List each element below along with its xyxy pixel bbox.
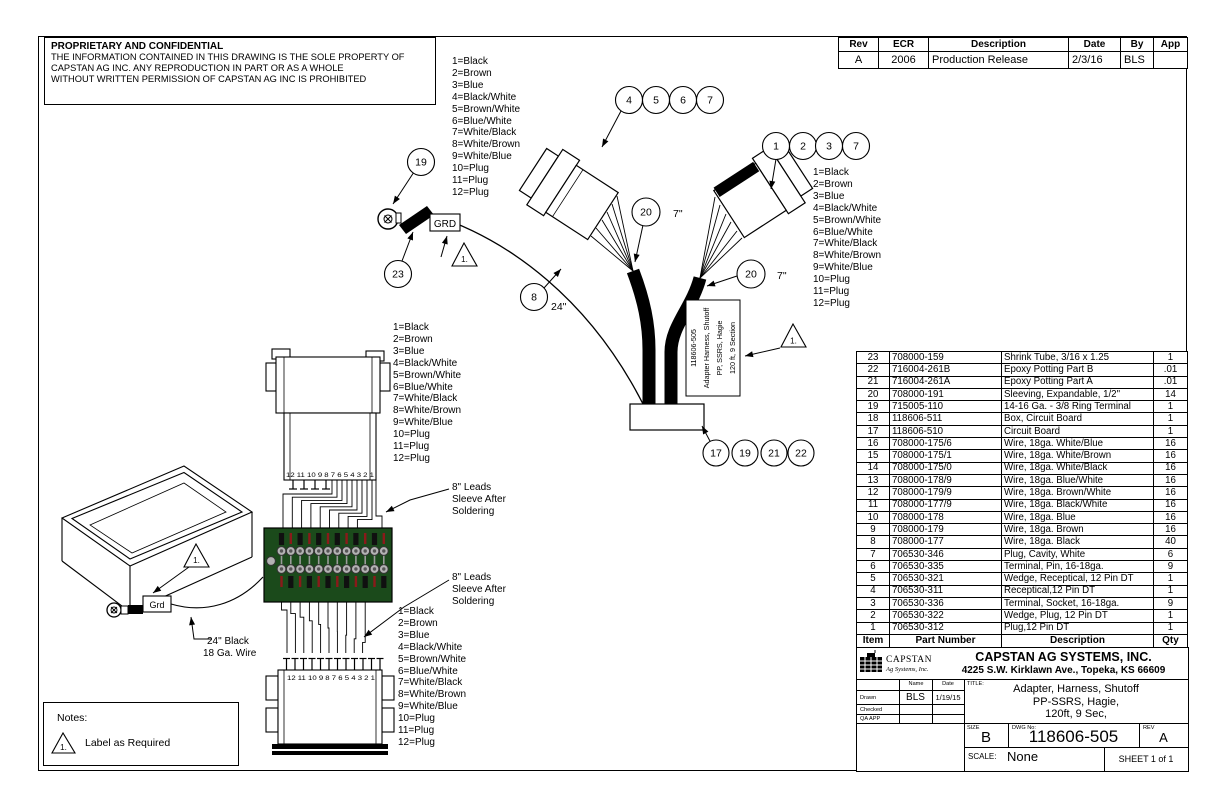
divider	[857, 679, 1188, 680]
parts-table-row: 22716004-261BEpoxy Potting Part B.01	[857, 364, 1188, 376]
revision-table: Rev ECR Description Date By App A 2006 P…	[838, 37, 1188, 69]
parts-col-desc: Wire, 18ga. Blue/White	[1002, 474, 1154, 486]
company-name: CAPSTAN AG SYSTEMS, INC.	[941, 650, 1186, 664]
harness-label-line: 118606-505	[689, 329, 698, 367]
parts-col-desc: Wire, 18ga. White/Black	[1002, 462, 1154, 474]
receptacle-pins	[289, 480, 330, 489]
balloon-22: 22	[795, 448, 807, 460]
pad-hole	[336, 567, 339, 570]
parts-col-item: 20	[857, 388, 890, 400]
wire-legend-line: 4=Black/White	[813, 203, 881, 215]
wire-legend-line: 4=Black/White	[398, 642, 466, 654]
svg-text:Soldering: Soldering	[452, 506, 494, 517]
wire-legend-line: 7=White/Black	[452, 127, 520, 139]
parts-col-desc: Plug, Cavity, White	[1002, 548, 1154, 560]
balloon-23: 23	[392, 269, 404, 281]
notes-box: Notes: 1. Label as Required	[43, 702, 239, 766]
wire-legend-line: 10=Plug	[398, 713, 466, 725]
app-value	[1154, 52, 1188, 69]
parts-col-part: 708000-177	[890, 536, 1002, 548]
parts-col-part: 708000-175/1	[890, 450, 1002, 462]
parts-col-item: 14	[857, 462, 890, 474]
pad-hole	[280, 549, 283, 552]
pin-numbers-upper: 12 11 10 9 8 7 6 5 4 3 2 1	[286, 472, 375, 479]
parts-col-item: 16	[857, 438, 890, 450]
parts-col-item: 7	[857, 548, 890, 560]
leader-arrowhead	[407, 232, 413, 241]
pad-hole	[326, 549, 329, 552]
parts-col-qty: 1	[1154, 585, 1188, 597]
lead-wire	[300, 602, 304, 653]
parts-col-desc: Shrink Tube, 3/16 x 1.25	[1002, 352, 1154, 364]
wire-legend-line: 1=Black	[398, 606, 466, 618]
parts-col-part: 118606-511	[890, 413, 1002, 425]
wire-legend-line: 6=Blue/White	[398, 666, 466, 678]
parts-col-qty: 1	[1154, 413, 1188, 425]
parts-col-desc: Receptical,12 Pin DT	[1002, 585, 1154, 597]
pad-hole	[373, 549, 376, 552]
scale-value: None	[1007, 749, 1038, 764]
wire-legend-line: 8=White/Brown	[393, 405, 461, 417]
wire-legend-line: 9=White/Blue	[398, 701, 466, 713]
wire-legend-line: 7=White/Black	[813, 238, 881, 250]
parts-col-desc: Epoxy Potting Part B	[1002, 364, 1154, 376]
wire-legend-line: 3=Blue	[452, 80, 520, 92]
board-component	[288, 576, 293, 588]
balloon-19: 19	[415, 157, 427, 169]
leader-arrowhead	[745, 351, 753, 357]
parts-table-row: 3706530-336Terminal, Socket, 16-18ga.9	[857, 597, 1188, 609]
capstan-logo-icon	[859, 650, 885, 681]
board-silkscreen-mark	[336, 576, 338, 587]
svg-text:18 Ga. Wire: 18 Ga. Wire	[203, 648, 257, 659]
parts-col-item: 19	[857, 401, 890, 413]
pad-hole	[354, 549, 357, 552]
board-component	[344, 576, 349, 588]
parts-col-part: 708000-175/0	[890, 462, 1002, 474]
harness-label-line: PP, SSRS, Hagie	[715, 320, 724, 375]
wire-legend-line: 4=Black/White	[393, 358, 461, 370]
wire-legend-line: 11=Plug	[813, 286, 881, 298]
wire-legend-line: 7=White/Black	[398, 677, 466, 689]
ecr-col-header: ECR	[879, 38, 929, 52]
parts-col-desc: Wire, 18ga. White/Brown	[1002, 450, 1154, 462]
board-silkscreen-mark	[290, 533, 292, 544]
parts-table-row: 21716004-261AEpoxy Potting Part A.01	[857, 376, 1188, 388]
scale-label: SCALE:	[968, 752, 996, 761]
leads-note-upper: 8" Leads Sleeve After Soldering	[452, 482, 507, 517]
parts-col-qty: .01	[1154, 364, 1188, 376]
engineering-drawing-page: { "sheet": { "proprietary": { "title": "…	[0, 0, 1224, 792]
parts-table-row: 19715005-11014-16 Ga. - 3/8 Ring Termina…	[857, 401, 1188, 413]
parts-col-part: 708000-178/9	[890, 474, 1002, 486]
parts-table-row: 7706530-346Plug, Cavity, White6	[857, 548, 1188, 560]
pad-hole	[364, 567, 367, 570]
parts-col-desc: 14-16 Ga. - 3/8 Ring Terminal	[1002, 401, 1154, 413]
balloon-2: 2	[800, 141, 806, 153]
parts-col-part: 716004-261A	[890, 376, 1002, 388]
board-silkscreen-mark	[299, 576, 301, 587]
wire-legend-line: 5=Brown/White	[452, 104, 520, 116]
parts-col-item: 12	[857, 487, 890, 499]
leader-arrowhead	[386, 506, 394, 512]
note-flag-grd-lower: 1.	[184, 544, 209, 567]
parts-col-part: 706530-311	[890, 585, 1002, 597]
parts-col-part: 706530-335	[890, 561, 1002, 573]
date-col-header: Date	[1069, 38, 1121, 52]
leader-arrowhead	[442, 236, 448, 245]
plug-seal-band	[272, 751, 388, 755]
pad-hole	[326, 567, 329, 570]
plug-seal-band	[272, 744, 388, 749]
pad-hole	[298, 567, 301, 570]
parts-table-row: 18118606-511Box, Circuit Board1	[857, 413, 1188, 425]
size-value: B	[964, 729, 1008, 746]
drawing-title: Adapter, Harness, ShutoffPP-SSRS, Hagie,…	[964, 683, 1188, 721]
date-column-header: Date	[935, 681, 961, 687]
leads-note-lower: 8" Leads Sleeve After Soldering	[452, 572, 507, 607]
wire-legend-line: 2=Brown	[813, 179, 881, 191]
lead-wire	[363, 602, 366, 653]
balloon-20a: 20	[640, 207, 652, 219]
note-1-text: Label as Required	[85, 737, 170, 749]
wire-legend-line: 12=Plug	[398, 737, 466, 749]
drawn-label: Drawn	[860, 695, 876, 701]
wire-legend-line: 6=Blue/White	[393, 382, 461, 394]
divider	[857, 714, 964, 715]
pad-hole	[289, 567, 292, 570]
parts-col-item: 6	[857, 561, 890, 573]
balloon-4: 4	[626, 95, 632, 107]
revision-row: A 2006 Production Release 2/3/16 BLS	[839, 52, 1188, 69]
grd-label: GRD	[434, 219, 456, 230]
parts-table-row: 23708000-159Shrink Tube, 3/16 x 1.251	[857, 352, 1188, 364]
parts-table-row: 13708000-178/9Wire, 18ga. Blue/White16	[857, 474, 1188, 486]
parts-col-item: 1	[857, 622, 890, 634]
parts-col-item: 15	[857, 450, 890, 462]
parts-col-qty: 1	[1154, 352, 1188, 364]
parts-col-desc: Wire, 18ga. Black	[1002, 536, 1154, 548]
lead-wire	[346, 602, 347, 653]
lead-wire	[376, 480, 382, 528]
wire-legend-line: 11=Plug	[452, 175, 520, 187]
parts-col-part: 708000-177/9	[890, 499, 1002, 511]
parts-col-qty: 9	[1154, 561, 1188, 573]
parts-col-qty: 14	[1154, 388, 1188, 400]
wire-legend-line: 11=Plug	[398, 725, 466, 737]
parts-col-item: 18	[857, 413, 890, 425]
svg-text:24" Black: 24" Black	[207, 636, 250, 647]
balloon-20b: 20	[745, 269, 757, 281]
parts-col-qty: 1	[1154, 573, 1188, 585]
divider	[857, 704, 964, 705]
ground-wire-lower	[171, 577, 263, 608]
parts-col-qty: 1	[1154, 622, 1188, 634]
board-component	[353, 533, 358, 545]
date-value: 2/3/16	[1069, 52, 1121, 69]
lead-wire	[357, 480, 372, 528]
parts-col-qty: 16	[1154, 487, 1188, 499]
parts-col-item: 8	[857, 536, 890, 548]
parts-col-desc: Wire, 18ga. White/Blue	[1002, 438, 1154, 450]
parts-table-row: 15708000-175/1Wire, 18ga. White/Brown16	[857, 450, 1188, 462]
revision-header-row: Rev ECR Description Date By App	[839, 38, 1188, 52]
pad-hole	[308, 549, 311, 552]
svg-text:Sleeve After: Sleeve After	[452, 494, 507, 505]
parts-col-item: 11	[857, 499, 890, 511]
wire-legend-line: 2=Brown	[393, 334, 461, 346]
parts-col-part: 708000-178	[890, 511, 1002, 523]
wire-legend-line: 5=Brown/White	[398, 654, 466, 666]
board-silkscreen-mark	[345, 533, 347, 544]
board-silkscreen-mark	[327, 533, 329, 544]
pad-hole	[280, 567, 283, 570]
board-pad	[267, 557, 276, 566]
wire-legend-line: 1=Black	[393, 322, 461, 334]
parts-col-qty: 16	[1154, 511, 1188, 523]
board-lower-wire-fan	[282, 602, 366, 653]
proprietary-text: THE INFORMATION CONTAINED IN THIS DRAWIN…	[51, 52, 429, 85]
parts-col-qty: 16	[1154, 462, 1188, 474]
parts-list-table: 23708000-159Shrink Tube, 3/16 x 1.251227…	[856, 351, 1188, 649]
parts-col-qty: 1	[1154, 425, 1188, 437]
board-silkscreen-mark	[308, 533, 310, 544]
wire-color-legend-bottom: 1=Black2=Brown3=Blue4=Black/White5=Brown…	[398, 606, 466, 749]
parts-col-part: 706530-346	[890, 548, 1002, 560]
lead-wire	[319, 602, 321, 653]
balloon-7: 7	[707, 95, 713, 107]
drawn-name: BLS	[900, 692, 931, 703]
balloon-21: 21	[768, 448, 780, 460]
wire-legend-line: 6=Blue/White	[813, 227, 881, 239]
board-silkscreen-mark	[355, 576, 357, 587]
pad-hole	[382, 549, 385, 552]
parts-col-item: 2	[857, 610, 890, 622]
wire-legend-line: 11=Plug	[393, 441, 461, 453]
parts-table-row: 6706530-335Terminal, Pin, 16-18ga.9	[857, 561, 1188, 573]
by-col-header: By	[1121, 38, 1154, 52]
parts-col-desc: Epoxy Potting Part A	[1002, 376, 1154, 388]
board-receptacle-connector	[266, 349, 390, 480]
name-column-header: Name	[904, 681, 928, 687]
parts-table-row: 9708000-179Wire, 18ga. Brown16	[857, 524, 1188, 536]
wire-legend-line: 12=Plug	[813, 298, 881, 310]
board-component	[363, 576, 368, 588]
parts-col-part: 716004-261B	[890, 364, 1002, 376]
parts-table-row: 2706530-322Wedge, Plug, 12 Pin DT1	[857, 610, 1188, 622]
wire-legend-line: 2=Brown	[452, 68, 520, 80]
parts-col-qty: 16	[1154, 524, 1188, 536]
parts-col-part: 708000-191	[890, 388, 1002, 400]
wire-legend-line: 9=White/Blue	[393, 417, 461, 429]
note-1: 1. Label as Required	[50, 731, 170, 755]
parts-col-item: 3	[857, 597, 890, 609]
wire-color-legend-right: 1=Black2=Brown3=Blue4=Black/White5=Brown…	[813, 167, 881, 310]
rev-col-header: Rev	[839, 38, 879, 52]
pad-hole	[345, 567, 348, 570]
balloon-5: 5	[653, 95, 659, 107]
wire-legend-line: 4=Black/White	[452, 92, 520, 104]
sleeved-cable-left	[633, 271, 649, 404]
wire-legend-line: 6=Blue/White	[452, 116, 520, 128]
parts-col-part: 708000-179/9	[890, 487, 1002, 499]
checked-label: Checked	[860, 707, 882, 713]
harness-label-line: 120 ft, 9 Section	[728, 322, 737, 374]
board-component	[298, 533, 303, 545]
parts-table-row: 10708000-178Wire, 18ga. Blue16	[857, 511, 1188, 523]
parts-col-item: 13	[857, 474, 890, 486]
ring-terminal-upper	[378, 209, 401, 229]
shrink-tube	[399, 206, 434, 234]
pad-hole	[308, 567, 311, 570]
wire-legend-line: 8=White/Brown	[452, 139, 520, 151]
pad-hole	[289, 549, 292, 552]
parts-table-row: 17118606-510Circuit Board1	[857, 425, 1188, 437]
leader-arrowhead	[153, 586, 161, 593]
balloon-8: 8	[531, 292, 537, 304]
leader-arrowhead	[707, 281, 716, 287]
rev-value: A	[839, 52, 879, 69]
wire-legend-line: 1=Black	[813, 167, 881, 179]
wire-legend-line: 10=Plug	[813, 274, 881, 286]
balloon-17: 17	[710, 448, 722, 460]
pad-hole	[317, 567, 320, 570]
parts-table-row: 1706530-312Plug,12 Pin DT1	[857, 622, 1188, 634]
proprietary-line: CAPSTAN AG INC. ANY REPRODUCTION IN PART…	[51, 63, 429, 74]
board-silkscreen-mark	[318, 576, 320, 587]
parts-col-qty: 1	[1154, 610, 1188, 622]
parts-col-qty: .01	[1154, 376, 1188, 388]
board-silkscreen-mark	[383, 533, 385, 544]
grd-lower-label: Grd	[149, 600, 164, 610]
pad-hole	[345, 549, 348, 552]
parts-col-desc: Wire, 18ga. Brown	[1002, 524, 1154, 536]
sheet-number: SHEET 1 of 1	[1104, 754, 1188, 764]
qa-app-label: QA APP	[860, 716, 880, 722]
balloon-7b: 7	[853, 141, 859, 153]
parts-col-qty: 16	[1154, 499, 1188, 511]
drawing-title-line: 120ft, 9 Sec,	[964, 708, 1188, 721]
pad-hole	[373, 567, 376, 570]
notes-heading: Notes:	[57, 712, 87, 724]
leader-arrowhead	[393, 196, 400, 204]
board-silkscreen-mark	[280, 576, 282, 587]
parts-col-qty: 16	[1154, 474, 1188, 486]
wire-legend-line: 2=Brown	[398, 618, 466, 630]
divider	[857, 690, 964, 691]
balloon-19b: 19	[739, 448, 751, 460]
parts-table-row: 12708000-179/9Wire, 18ga. Brown/White16	[857, 487, 1188, 499]
lead-wire	[328, 602, 329, 653]
proprietary-line: WITHOUT WRITTEN PERMISSION OF CAPSTAN AG…	[51, 74, 429, 85]
parts-table-row: 14708000-175/0Wire, 18ga. White/Black16	[857, 462, 1188, 474]
parts-table-row: 11708000-177/9Wire, 18ga. Black/White16	[857, 499, 1188, 511]
title-block: CAPSTAN Ag Systems, Inc. CAPSTAN AG SYST…	[856, 647, 1189, 772]
pad-hole	[354, 567, 357, 570]
description-col-header: Description	[929, 38, 1069, 52]
parts-table-row: 20708000-191Sleeving, Expandable, 1/2"14	[857, 388, 1188, 400]
proprietary-line: THE INFORMATION CONTAINED IN THIS DRAWIN…	[51, 52, 429, 63]
parts-col-item: 22	[857, 364, 890, 376]
leader-arrowhead	[634, 254, 640, 262]
parts-col-desc: Box, Circuit Board	[1002, 413, 1154, 425]
note-flag-grd: 1.	[452, 243, 477, 266]
parts-col-desc: Wire, 18ga. Blue	[1002, 511, 1154, 523]
parts-col-desc: Plug,12 Pin DT	[1002, 622, 1154, 634]
logo-subtext: Ag Systems, Inc.	[886, 666, 929, 673]
board-component	[279, 533, 284, 545]
parts-col-qty: 9	[1154, 597, 1188, 609]
wire-color-legend-middle: 1=Black2=Brown3=Blue4=Black/White5=Brown…	[393, 322, 461, 465]
board-upper-wire-fan	[283, 480, 382, 528]
wire-color-legend-top: 1=Black2=Brown3=Blue4=Black/White5=Brown…	[452, 56, 520, 199]
parts-col-desc: Circuit Board	[1002, 425, 1154, 437]
board-component	[307, 576, 312, 588]
pad-hole	[364, 549, 367, 552]
by-value: BLS	[1121, 52, 1154, 69]
parts-col-item: 10	[857, 511, 890, 523]
wire-legend-line: 8=White/Brown	[813, 250, 881, 262]
wire-legend-line: 1=Black	[452, 56, 520, 68]
board-component	[316, 533, 321, 545]
dim-7in-left: 7"	[673, 208, 683, 220]
svg-text:Sleeve After: Sleeve After	[452, 584, 507, 595]
parts-col-qty: 40	[1154, 536, 1188, 548]
parts-col-part: 708000-179	[890, 524, 1002, 536]
wire-legend-line: 9=White/Blue	[813, 262, 881, 274]
parts-table-row: 8708000-177Wire, 18ga. Black40	[857, 536, 1188, 548]
dwg-no-value: 118606-505	[1008, 727, 1139, 747]
parts-col-desc: Wire, 18ga. Brown/White	[1002, 487, 1154, 499]
ecr-value: 2006	[879, 52, 929, 69]
drawing-title-line: Adapter, Harness, Shutoff	[964, 683, 1188, 696]
pad-hole	[336, 549, 339, 552]
proprietary-title: PROPRIETARY AND CONFIDENTIAL	[51, 41, 429, 52]
dim-24in: 24"	[551, 301, 567, 313]
parts-col-item: 4	[857, 585, 890, 597]
parts-col-desc: Wire, 18ga. Black/White	[1002, 499, 1154, 511]
parts-col-part: 118606-510	[890, 425, 1002, 437]
wire-legend-line: 10=Plug	[393, 429, 461, 441]
wire-legend-line: 8=White/Brown	[398, 689, 466, 701]
parts-col-desc: Terminal, Socket, 16-18ga.	[1002, 597, 1154, 609]
plug-pins	[283, 659, 384, 670]
board-component	[325, 576, 330, 588]
rev-value: A	[1139, 730, 1188, 745]
note-flag-harness-label: 1.	[781, 324, 806, 347]
drawn-date: 1/19/15	[933, 693, 963, 702]
parts-col-part: 706530-336	[890, 597, 1002, 609]
pad-hole	[382, 567, 385, 570]
balloon-3: 3	[826, 141, 832, 153]
description-value: Production Release	[929, 52, 1069, 69]
parts-col-qty: 1	[1154, 401, 1188, 413]
parts-col-qty: 16	[1154, 438, 1188, 450]
lead-wire	[291, 602, 296, 653]
proprietary-notice: PROPRIETARY AND CONFIDENTIAL THE INFORMA…	[44, 37, 436, 105]
harness-label-line: Adapter Harness, Shutoff	[702, 308, 711, 389]
wire-legend-line: 10=Plug	[452, 163, 520, 175]
parts-col-item: 17	[857, 425, 890, 437]
wire-legend-line: 9=White/Blue	[452, 151, 520, 163]
svg-text:1.: 1.	[461, 255, 468, 264]
board-silkscreen-mark	[364, 533, 366, 544]
lead-wire	[282, 602, 288, 653]
parts-col-part: 706530-312	[890, 622, 1002, 634]
wire-legend-line: 12=Plug	[393, 453, 461, 465]
shrink-tube-lower	[128, 605, 143, 614]
svg-text:8" Leads: 8" Leads	[452, 482, 491, 493]
